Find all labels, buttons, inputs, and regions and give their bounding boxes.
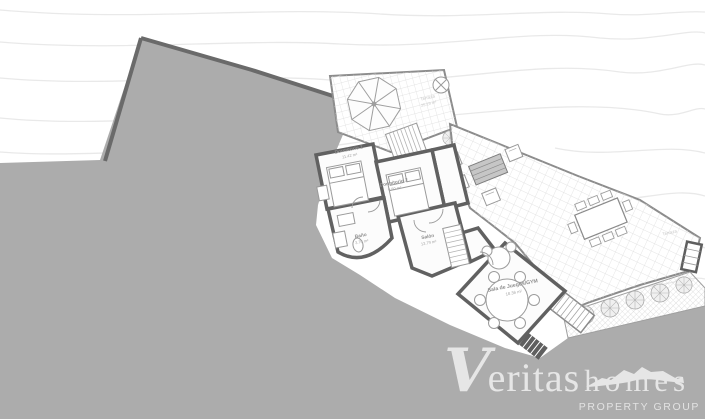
round-table-icon: [433, 77, 449, 93]
floor-plan-screenshot: Dormitorio 1 11.42 m² Dormitorio 2 9.50 …: [0, 0, 705, 419]
watermark-logo: Veritas homes PROPERTY GROUP: [444, 341, 702, 415]
bed-1: [326, 161, 368, 207]
brand-veritas-text: Veritas: [444, 341, 580, 401]
bedside-table-1: [317, 185, 329, 201]
mountain-icon: [584, 365, 686, 389]
